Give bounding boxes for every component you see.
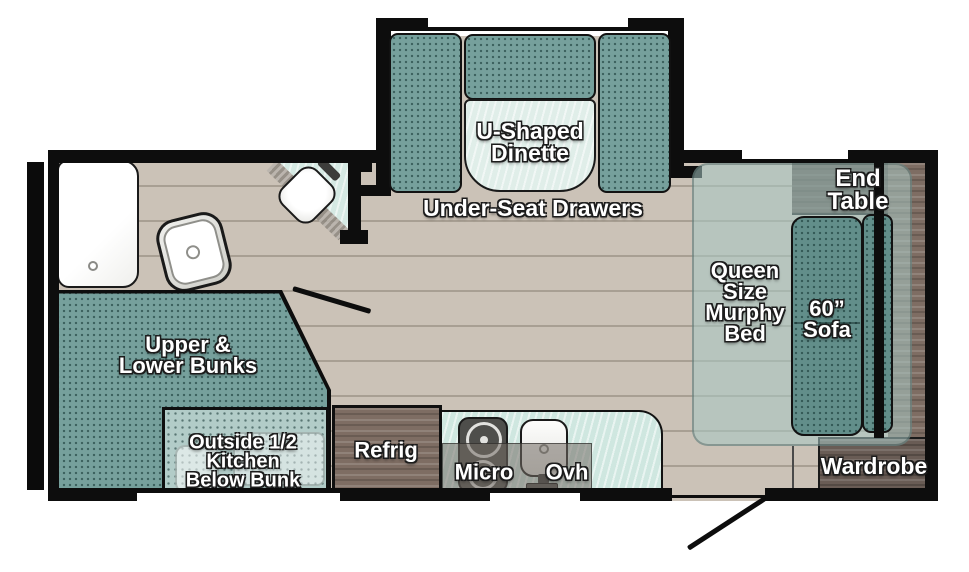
wardrobe-label: Wardrobe [821, 456, 928, 478]
front-cap-wall [27, 162, 44, 490]
dinette-label: U-Shaped Dinette [476, 121, 583, 165]
wall-step [358, 160, 372, 172]
murphy-bed-label: Queen Size Murphy Bed [705, 261, 784, 345]
bunks-label: Upper & Lower Bunks [119, 335, 257, 377]
end-table-label: End Table [828, 168, 889, 214]
dinette-bench-right [598, 33, 671, 193]
window-top-right [742, 150, 848, 159]
slideout-left-wall-foot [360, 185, 378, 196]
wall-top-left [48, 150, 380, 163]
floorplan-canvas: U-Shaped Dinette Under-Seat Drawers End … [0, 0, 969, 572]
under-seat-drawers-label: Under-Seat Drawers [423, 198, 643, 220]
micro-label: Micro [455, 463, 514, 484]
cargo-hatch [137, 493, 340, 501]
bathroom-wall-foot [340, 230, 368, 244]
sofa-label: 60” Sofa [803, 299, 851, 341]
dinette-bench-center [464, 34, 596, 100]
refrig-label: Refrig [354, 441, 418, 462]
dinette-bench-left [389, 33, 462, 193]
ovh-label: Ovh [546, 463, 589, 484]
outside-kitchen-label: Outside 1/2 Kitchen Below Bunk [186, 434, 300, 491]
shower-drain-icon [88, 261, 98, 271]
entry-door-swing [687, 496, 767, 550]
slideout-window [428, 18, 628, 27]
entry-threshold [672, 495, 765, 498]
shower [57, 160, 139, 288]
bedroom-floor-line [792, 446, 794, 490]
kitchen-hatch [490, 493, 580, 501]
wall-left [48, 150, 59, 501]
wall-right [925, 150, 938, 501]
